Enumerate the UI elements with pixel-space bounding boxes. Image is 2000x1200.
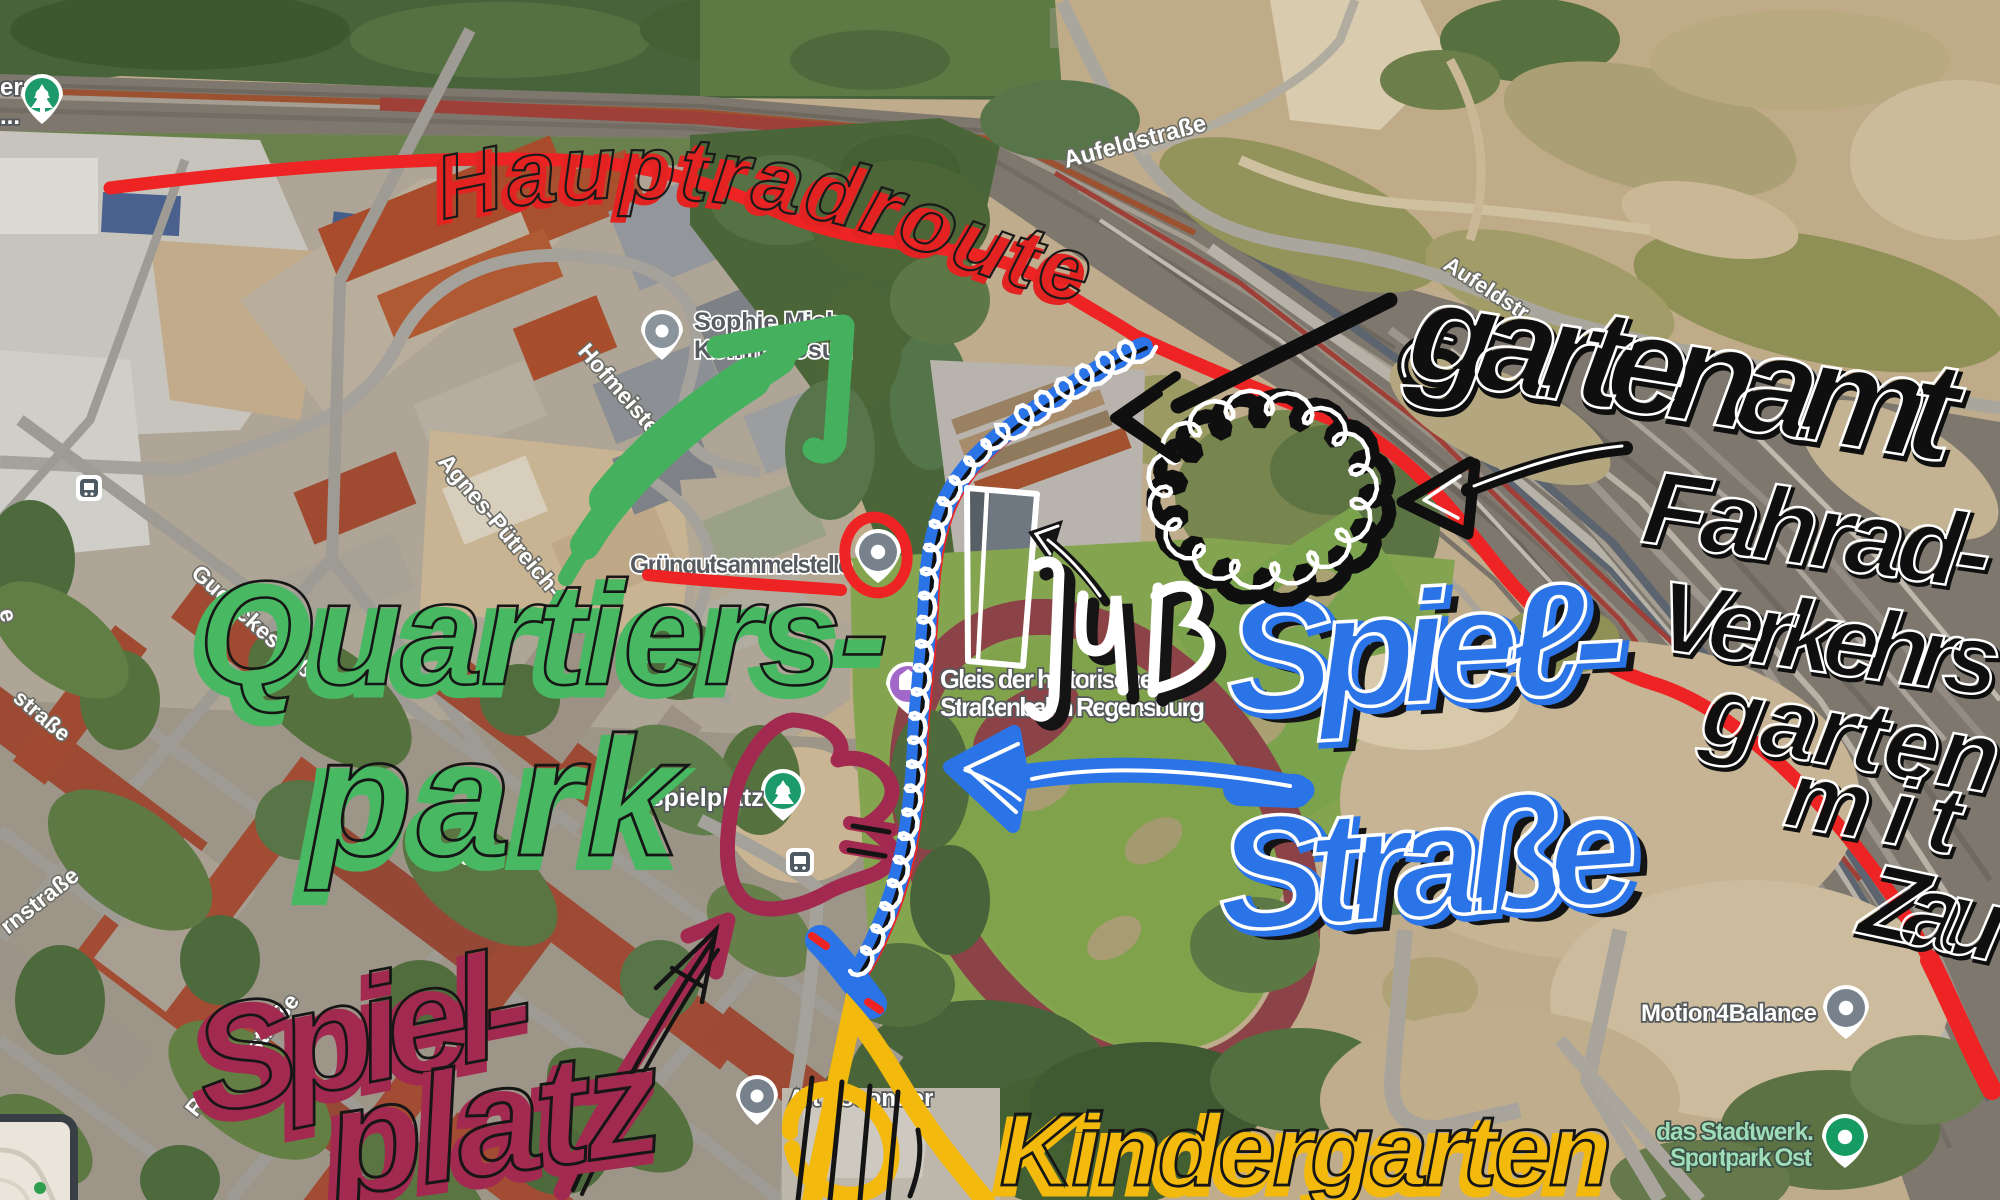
svg-text:Straße: Straße bbox=[1211, 756, 1642, 964]
svg-text:er: er bbox=[0, 74, 23, 101]
svg-text:Quartiers-: Quartiers- bbox=[199, 551, 889, 716]
svg-text:...: ... bbox=[0, 103, 20, 130]
svg-text:Motion4Balance: Motion4Balance bbox=[1641, 1000, 1817, 1027]
svg-text:Kindergarten: Kindergarten bbox=[1000, 1092, 1612, 1200]
svg-text:das Stadtwerk.: das Stadtwerk. bbox=[1656, 1118, 1814, 1146]
svg-text:Sportpark Ost: Sportpark Ost bbox=[1670, 1144, 1813, 1172]
svg-text:Spieℓ-: Spieℓ- bbox=[1221, 547, 1630, 747]
svg-text:park: park bbox=[305, 702, 688, 892]
